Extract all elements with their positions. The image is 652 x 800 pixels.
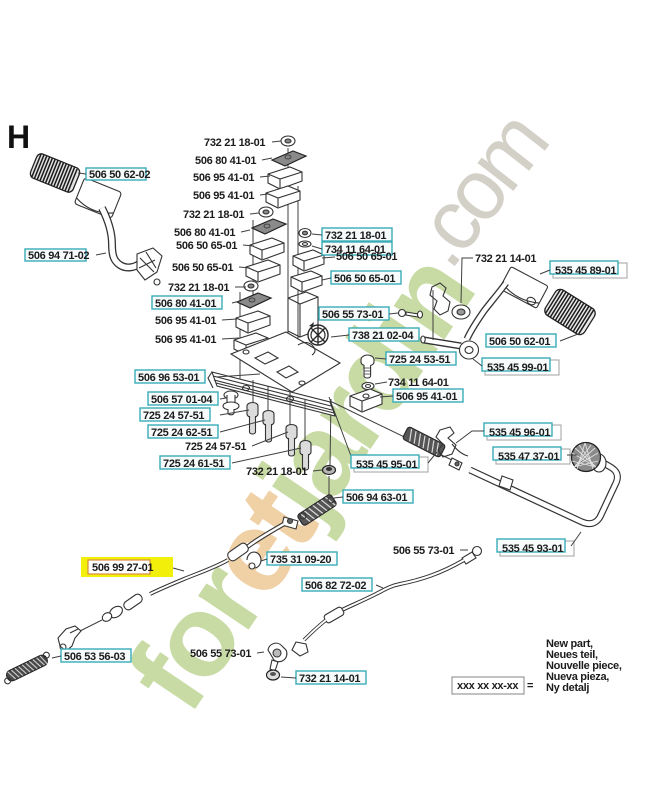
svg-text:506 80 41-01: 506 80 41-01 [155,298,216,310]
svg-text:506 80 41-01: 506 80 41-01 [195,155,256,167]
svg-text:Ny detalj: Ny detalj [546,682,589,694]
svg-text:732 21 14-01: 732 21 14-01 [299,673,360,685]
svg-text:506 50 65-01: 506 50 65-01 [176,240,237,252]
svg-text:732 21 18-01: 732 21 18-01 [168,282,229,294]
svg-text:725 24 62-51: 725 24 62-51 [151,427,212,439]
svg-text:535 45 95-01: 535 45 95-01 [356,459,417,471]
svg-text:732 21 18-01: 732 21 18-01 [246,466,307,478]
svg-text:506 96 53-01: 506 96 53-01 [138,372,199,384]
svg-text:506 94 71-02: 506 94 71-02 [28,250,89,262]
svg-text:xxx xx xx-xx: xxx xx xx-xx [457,680,519,692]
svg-text:535 47 37-01: 535 47 37-01 [498,451,559,463]
svg-text:535 45 93-01: 535 45 93-01 [502,543,563,555]
svg-text:732 21 18-01: 732 21 18-01 [183,209,244,221]
svg-text:535 45 99-01: 535 45 99-01 [487,362,548,374]
svg-text:506 95 41-01: 506 95 41-01 [155,334,216,346]
svg-text:535 45 89-01: 535 45 89-01 [555,265,616,277]
svg-text:725 24 57-51: 725 24 57-51 [185,441,246,453]
svg-text:725 24 53-51: 725 24 53-51 [389,354,450,366]
svg-text:735 31 09-20: 735 31 09-20 [270,554,331,566]
svg-text:506 50 65-01: 506 50 65-01 [336,251,397,263]
svg-text:732 21 18-01: 732 21 18-01 [325,230,386,242]
svg-text:506 95 41-01: 506 95 41-01 [396,391,457,403]
svg-text:506 80 41-01: 506 80 41-01 [174,227,235,239]
svg-text:506 94 63-01: 506 94 63-01 [346,492,407,504]
svg-text:732 21 14-01: 732 21 14-01 [475,253,536,265]
svg-text:H: H [7,119,30,155]
svg-text:506 53 56-03: 506 53 56-03 [64,651,125,663]
svg-text:506 57 01-04: 506 57 01-04 [151,394,213,406]
svg-text:725 24 61-51: 725 24 61-51 [163,458,224,470]
svg-text:506 50 65-01: 506 50 65-01 [334,273,395,285]
svg-text:506 50 62-02: 506 50 62-02 [89,169,150,181]
svg-text:506 95 41-01: 506 95 41-01 [193,190,254,202]
svg-text:732 21 18-01: 732 21 18-01 [204,137,265,149]
svg-text:734 11 64-01: 734 11 64-01 [388,377,449,389]
svg-text:738 21 02-04: 738 21 02-04 [352,330,414,342]
svg-text:506 50 65-01: 506 50 65-01 [172,262,233,274]
svg-text:506 55 73-01: 506 55 73-01 [393,545,454,557]
svg-text:506 99 27-01: 506 99 27-01 [92,562,153,574]
svg-text:725 24 57-51: 725 24 57-51 [143,410,204,422]
svg-text:506 82 72-02: 506 82 72-02 [305,580,366,592]
svg-text:506 50 62-01: 506 50 62-01 [489,336,550,348]
svg-text:506 55 73-01: 506 55 73-01 [190,648,251,660]
svg-text:506 95 41-01: 506 95 41-01 [193,172,254,184]
svg-text:506 55 73-01: 506 55 73-01 [322,309,383,321]
svg-text:=: = [527,680,533,692]
svg-text:535 45 96-01: 535 45 96-01 [489,427,550,439]
svg-text:506 95 41-01: 506 95 41-01 [155,315,216,327]
